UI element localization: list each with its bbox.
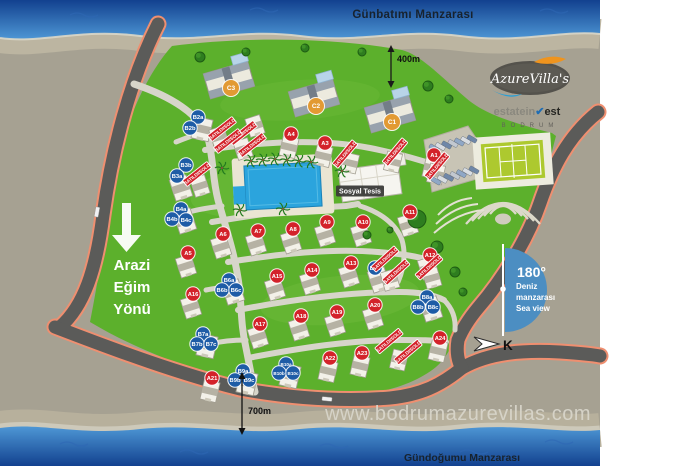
villa-marker-label: A4 (287, 132, 295, 138)
brand-sub: BODRUM (502, 123, 559, 129)
tree-icon (387, 227, 393, 233)
villa-marker-C1: C1 (384, 114, 401, 131)
villa-marker-label: A13 (346, 261, 357, 267)
villa-marker-A4: A4 (284, 127, 298, 141)
tennis-court (472, 132, 553, 189)
villa-marker-B6b: B6b (215, 283, 229, 297)
villa-marker-A10: A10 (356, 215, 370, 229)
svg-text:Sea view: Sea view (516, 304, 551, 313)
brand-estate: estatein✔est (494, 106, 561, 118)
villa-marker-label: B8c (428, 305, 439, 311)
brand-name: AzureVilla's (490, 72, 569, 87)
villa-marker-B4b: B4b (165, 212, 179, 226)
amphitheater-stage (495, 214, 511, 225)
svg-text:Sosyal Tesis: Sosyal Tesis (339, 189, 381, 196)
svg-text:Arazi: Arazi (114, 257, 151, 274)
villa-marker-A17: A17 (253, 317, 267, 331)
svg-text:400m: 400m (397, 54, 420, 64)
villa-marker-B3a: B3a (170, 169, 184, 183)
villa-marker-A24: A24 (433, 331, 447, 345)
villa-marker-B10b: B10b (272, 366, 286, 380)
top-sea-caption: Günbatımı Manzarası (352, 9, 473, 21)
tree-icon (195, 52, 205, 62)
villa-marker-label: B8b (413, 305, 424, 311)
villa-marker-C3: C3 (223, 80, 240, 97)
villa-marker-label: B3b (181, 163, 192, 169)
villa-marker-label: B4c (181, 218, 192, 224)
villa-marker-A11: A11 (403, 205, 417, 219)
villa-marker-label: A16 (188, 292, 199, 298)
villa-marker-label: B4b (167, 217, 178, 223)
villa-marker-label: C1 (388, 119, 397, 126)
svg-text:700m: 700m (248, 406, 271, 416)
view-origin-dot (500, 286, 506, 292)
villa-marker-label: B6c (231, 288, 242, 294)
villa-marker-label: B7c (206, 342, 217, 348)
villa-marker-B4c: B4c (179, 213, 193, 227)
villa-marker-label: A1 (430, 153, 438, 159)
tree-icon (450, 267, 460, 277)
tree-icon (301, 44, 309, 52)
villa-marker-A6: A6 (216, 227, 230, 241)
villa-marker-label: A24 (435, 336, 446, 342)
villa-marker-label: A19 (332, 310, 343, 316)
villa-marker-label: A17 (255, 322, 266, 328)
villa-marker-label: A3 (321, 141, 329, 147)
svg-text:Deniz: Deniz (516, 282, 537, 291)
website-url: www.bodrumazurevillas.com (324, 403, 591, 425)
villa-marker-B2b: B2b (183, 121, 197, 135)
villa-marker-label: B10b (273, 371, 284, 376)
villa-marker-A16: A16 (186, 287, 200, 301)
villa-marker-label: A23 (357, 351, 368, 357)
villa-marker-label: B3a (172, 174, 183, 180)
tree-icon (445, 95, 453, 103)
villa-marker-A21: A21 (205, 371, 219, 385)
villa-marker-label: B2b (185, 126, 196, 132)
villa-marker-A22: A22 (323, 351, 337, 365)
villa-marker-label: B4a (176, 207, 187, 213)
villa-marker-A9: A9 (320, 215, 334, 229)
villa-marker-label: A18 (296, 314, 307, 320)
road-sign-plate (322, 396, 332, 401)
svg-text:K: K (503, 338, 513, 353)
villa-marker-A14: A14 (305, 263, 319, 277)
svg-text:Eğim: Eğim (114, 279, 151, 296)
villa-marker-label: A14 (307, 268, 318, 274)
villa-marker-label: C3 (227, 85, 236, 92)
villa-marker-A5: A5 (181, 246, 195, 260)
tree-icon (242, 48, 250, 56)
villa-marker-label: B10c (288, 371, 299, 376)
villa-marker-label: A5 (184, 251, 192, 257)
villa-marker-B8b: B8b (411, 300, 425, 314)
site-plan-image: C3C2C1A1A3A4A5A6A7A8A9A10A11A12A13A14A15… (0, 0, 700, 466)
site-plan-page: C3C2C1A1A3A4A5A6A7A8A9A10A11A12A13A14A15… (0, 0, 700, 466)
villa-marker-label: A10 (358, 220, 369, 226)
villa-marker-label: A21 (207, 376, 218, 382)
social-facility-badge: Sosyal Tesis (336, 186, 384, 197)
tree-icon (423, 81, 433, 91)
villa-marker-A15: A15 (270, 269, 284, 283)
svg-text:manzarası: manzarası (516, 293, 555, 302)
villa-marker-label: A20 (370, 303, 381, 309)
villa-marker-A13: A13 (344, 256, 358, 270)
villa-marker-label: A6 (219, 232, 227, 238)
tree-icon (363, 231, 371, 239)
villa-marker-A19: A19 (330, 305, 344, 319)
villa-marker-label: A8 (289, 227, 297, 233)
villa-marker-B7c: B7c (204, 337, 218, 351)
tree-icon (358, 48, 366, 56)
villa-marker-label: B2a (193, 115, 204, 121)
villa-marker-A23: A23 (355, 346, 369, 360)
villa-marker-label: B7b (192, 342, 203, 348)
villa-marker-label: C2 (312, 103, 321, 110)
villa-marker-A3: A3 (318, 136, 332, 150)
villa-marker-B7b: B7b (190, 337, 204, 351)
villa-marker-C2: C2 (308, 98, 325, 115)
villa-marker-B9b: B9b (228, 373, 242, 387)
villa-marker-label: A22 (325, 356, 336, 362)
bottom-sea-caption: Gündoğumu Manzarası (404, 452, 520, 464)
villa-marker-B9c: B9c (242, 373, 256, 387)
villa-marker-A18: A18 (294, 309, 308, 323)
villa-marker-A20: A20 (368, 298, 382, 312)
villa-marker-label: A9 (323, 220, 331, 226)
villa-marker-label: A15 (272, 274, 283, 280)
villa-marker-A8: A8 (286, 222, 300, 236)
svg-text:180°: 180° (517, 264, 546, 280)
svg-text:Yönü: Yönü (113, 301, 151, 318)
villa-marker-B10c: B10c (286, 366, 300, 380)
tree-icon (459, 288, 467, 296)
villa-marker-A7: A7 (251, 224, 265, 238)
villa-marker-label: B6b (217, 288, 228, 294)
villa-marker-label: A7 (254, 229, 261, 235)
villa-marker-B6c: B6c (229, 283, 243, 297)
villa-marker-B8c: B8c (426, 300, 440, 314)
villa-marker-label: A11 (405, 210, 416, 216)
